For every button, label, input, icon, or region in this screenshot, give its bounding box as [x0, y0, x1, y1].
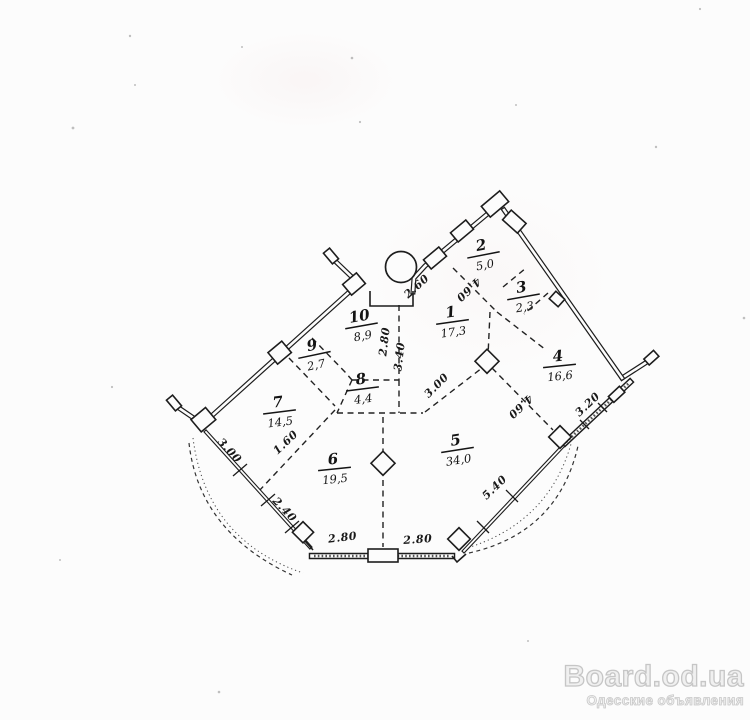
watermark-title: Board.od.ua — [563, 661, 744, 693]
dimension-label: 5.40 — [480, 473, 510, 503]
room-label-2: 25,0 — [464, 233, 503, 275]
partition-room8-left — [337, 380, 352, 413]
room-number: 8 — [355, 369, 368, 388]
room-area: 2,7 — [305, 356, 327, 374]
room-label-7: 714,5 — [261, 391, 298, 431]
room-area: 14,5 — [267, 413, 294, 430]
scanned-floor-plan-page: { "plan": { "rooms": [ {"number":"1", "a… — [0, 0, 750, 720]
room-area: 8,9 — [353, 327, 373, 344]
room-label-5: 534,0 — [438, 429, 476, 470]
room-label-4: 416,6 — [541, 345, 578, 384]
room-number: 5 — [449, 430, 462, 449]
room-number: 1 — [444, 302, 457, 321]
room-area: 17,3 — [440, 323, 467, 340]
room-label-6: 619,5 — [316, 448, 353, 487]
room-area: 19,5 — [322, 471, 349, 488]
room-label-10: 108,9 — [342, 304, 381, 345]
dimension-label: 1.60 — [271, 428, 301, 457]
column-diamond — [475, 349, 499, 373]
room-label-3: 32,3 — [504, 275, 543, 316]
dimension-label: 2.80 — [402, 532, 433, 547]
room-label-8: 84,4 — [344, 368, 381, 408]
room-number: 2 — [473, 235, 488, 255]
wall-piers — [166, 191, 658, 562]
partition-room1-room4 — [488, 312, 490, 356]
window-block — [368, 549, 398, 562]
window-gap — [608, 386, 624, 402]
dimension-label: 4.60 — [453, 275, 483, 304]
dimension-label: 3.40 — [391, 341, 407, 372]
watermark-subtitle: Одесские объявления — [563, 694, 744, 708]
room-number: 7 — [272, 392, 285, 411]
room-area: 34,0 — [445, 451, 472, 469]
room-area: 16,6 — [547, 368, 574, 385]
room-number: 6 — [327, 449, 340, 468]
floor-plan-svg: 117,325,032,3416,6534,0619,5714,584,492,… — [0, 0, 750, 720]
pier — [166, 395, 181, 411]
room-number: 4 — [552, 347, 564, 366]
partition-room3-room4 — [497, 312, 546, 350]
room-number: 10 — [347, 305, 371, 326]
round-column — [386, 252, 417, 283]
dimension-label: 3.00 — [215, 436, 244, 466]
room-label-1: 117,3 — [434, 301, 472, 341]
pier — [323, 248, 338, 264]
watermark: Board.od.ua Одесские объявления — [563, 661, 744, 708]
room-number: 9 — [305, 335, 320, 355]
room-area: 2,3 — [514, 298, 535, 315]
dimension-label: 2.80 — [326, 529, 358, 546]
dimension-label: 3.00 — [422, 371, 452, 401]
column-diamond — [371, 451, 395, 475]
column-diamond — [292, 522, 313, 543]
room-area: 4,4 — [352, 391, 373, 407]
pier — [191, 407, 216, 431]
dimension-label: 2.80 — [376, 326, 393, 358]
room-area: 5,0 — [475, 256, 496, 273]
room-number: 3 — [515, 277, 528, 297]
balcony-arc-right — [464, 444, 578, 553]
dimension-label: 4.60 — [505, 392, 535, 421]
